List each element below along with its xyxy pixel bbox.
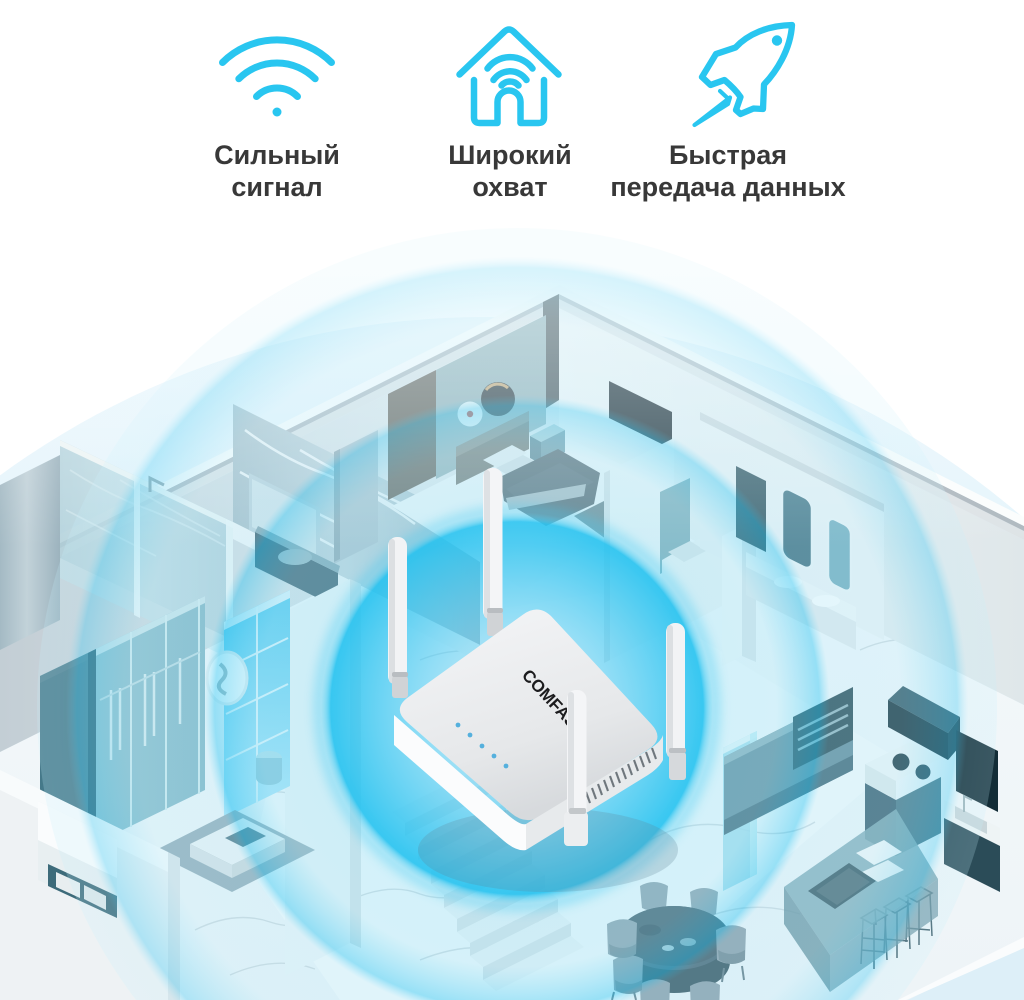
svg-text:Быстрая: Быстрая <box>669 140 787 170</box>
svg-text:сигнал: сигнал <box>231 172 322 202</box>
svg-text:передача данных: передача данных <box>610 172 845 202</box>
svg-text:Широкий: Широкий <box>448 140 571 170</box>
svg-text:охват: охват <box>472 172 547 202</box>
svg-text:Сильный: Сильный <box>214 140 340 170</box>
